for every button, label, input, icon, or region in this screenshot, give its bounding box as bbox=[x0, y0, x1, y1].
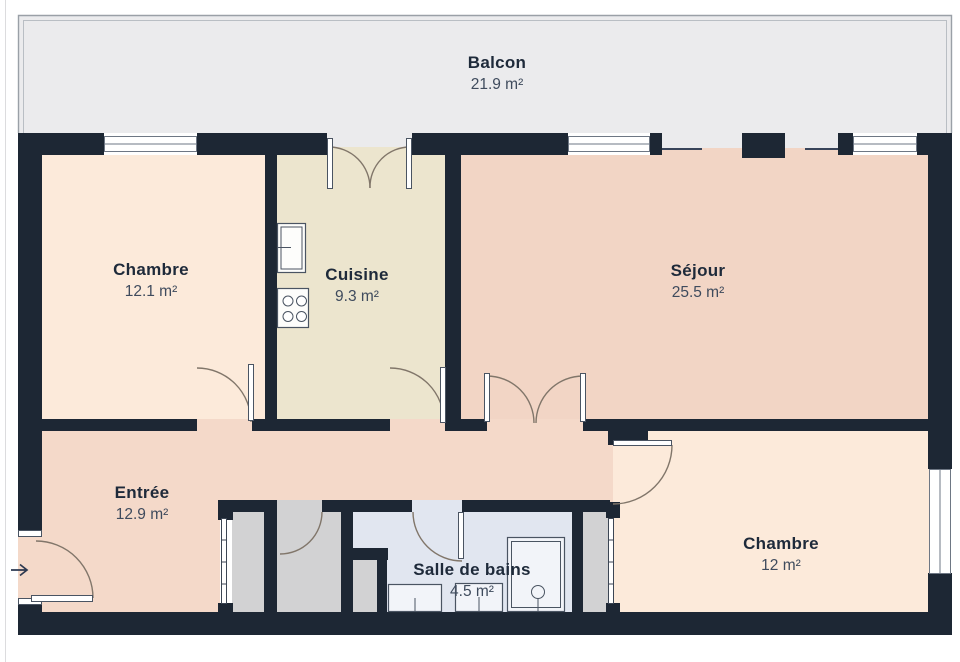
door-frame bbox=[407, 139, 412, 189]
door-frame bbox=[581, 374, 586, 422]
room-area: 4.5 m² bbox=[413, 580, 531, 603]
door-leaf bbox=[441, 368, 446, 423]
door-arc-sejour-left bbox=[487, 376, 534, 423]
room-name: Séjour bbox=[671, 260, 726, 281]
kitchen-fixtures bbox=[277, 224, 309, 328]
room-label-chambre-2: Chambre 12 m² bbox=[743, 533, 819, 577]
door-frame bbox=[328, 139, 333, 189]
room-name: Balcon bbox=[468, 52, 526, 73]
door-arc-balcony-left bbox=[329, 147, 370, 188]
room-name: Cuisine bbox=[325, 264, 389, 285]
door-arc-entry bbox=[36, 541, 93, 598]
cooktop-burner bbox=[297, 296, 307, 306]
door-leaf bbox=[459, 513, 464, 559]
room-label-salle-de-bains: Salle de bains 4.5 m² bbox=[413, 559, 531, 603]
door-arc-balcony-right bbox=[370, 147, 410, 188]
door-leaf bbox=[32, 596, 93, 602]
entrance-arrow-icon bbox=[11, 565, 27, 576]
room-area: 12 m² bbox=[743, 554, 819, 577]
door-frames bbox=[19, 139, 672, 605]
floor-plan: Balcon 21.9 m² Chambre 12.1 m² Cuisine 9… bbox=[0, 0, 960, 662]
room-label-chambre-1: Chambre 12.1 m² bbox=[113, 259, 189, 303]
cooktop bbox=[278, 289, 309, 328]
door-leaf bbox=[249, 365, 254, 421]
door-arc-chambre-1 bbox=[197, 368, 251, 422]
windows bbox=[104, 137, 951, 574]
door-arc-bathroom bbox=[413, 512, 462, 561]
door-arc-sejour-right bbox=[536, 376, 583, 423]
folding-door bbox=[222, 519, 227, 604]
room-name: Chambre bbox=[113, 259, 189, 280]
door-arcs bbox=[36, 147, 672, 598]
cooktop-burner bbox=[283, 312, 293, 322]
room-name: Chambre bbox=[743, 533, 819, 554]
cooktop-burner bbox=[297, 312, 307, 322]
room-label-balcon: Balcon 21.9 m² bbox=[468, 52, 526, 96]
room-name: Entrée bbox=[115, 482, 170, 503]
door-arc-chambre-2 bbox=[613, 445, 672, 504]
room-label-entree: Entrée 12.9 m² bbox=[115, 482, 170, 526]
door-arc-closet bbox=[280, 512, 322, 554]
room-name: Salle de bains bbox=[413, 559, 531, 580]
door-frame bbox=[485, 374, 490, 422]
door-frame bbox=[19, 531, 42, 537]
room-area: 12.1 m² bbox=[113, 280, 189, 303]
room-area: 9.3 m² bbox=[325, 285, 389, 308]
room-area: 25.5 m² bbox=[671, 281, 726, 304]
door-arc-cuisine bbox=[390, 368, 444, 422]
room-label-cuisine: Cuisine 9.3 m² bbox=[325, 264, 389, 308]
folding-door bbox=[609, 519, 614, 604]
cooktop-burner bbox=[283, 296, 293, 306]
room-area: 12.9 m² bbox=[115, 503, 170, 526]
door-leaf bbox=[614, 441, 672, 446]
room-area: 21.9 m² bbox=[468, 73, 526, 96]
room-label-sejour: Séjour 25.5 m² bbox=[671, 260, 726, 304]
